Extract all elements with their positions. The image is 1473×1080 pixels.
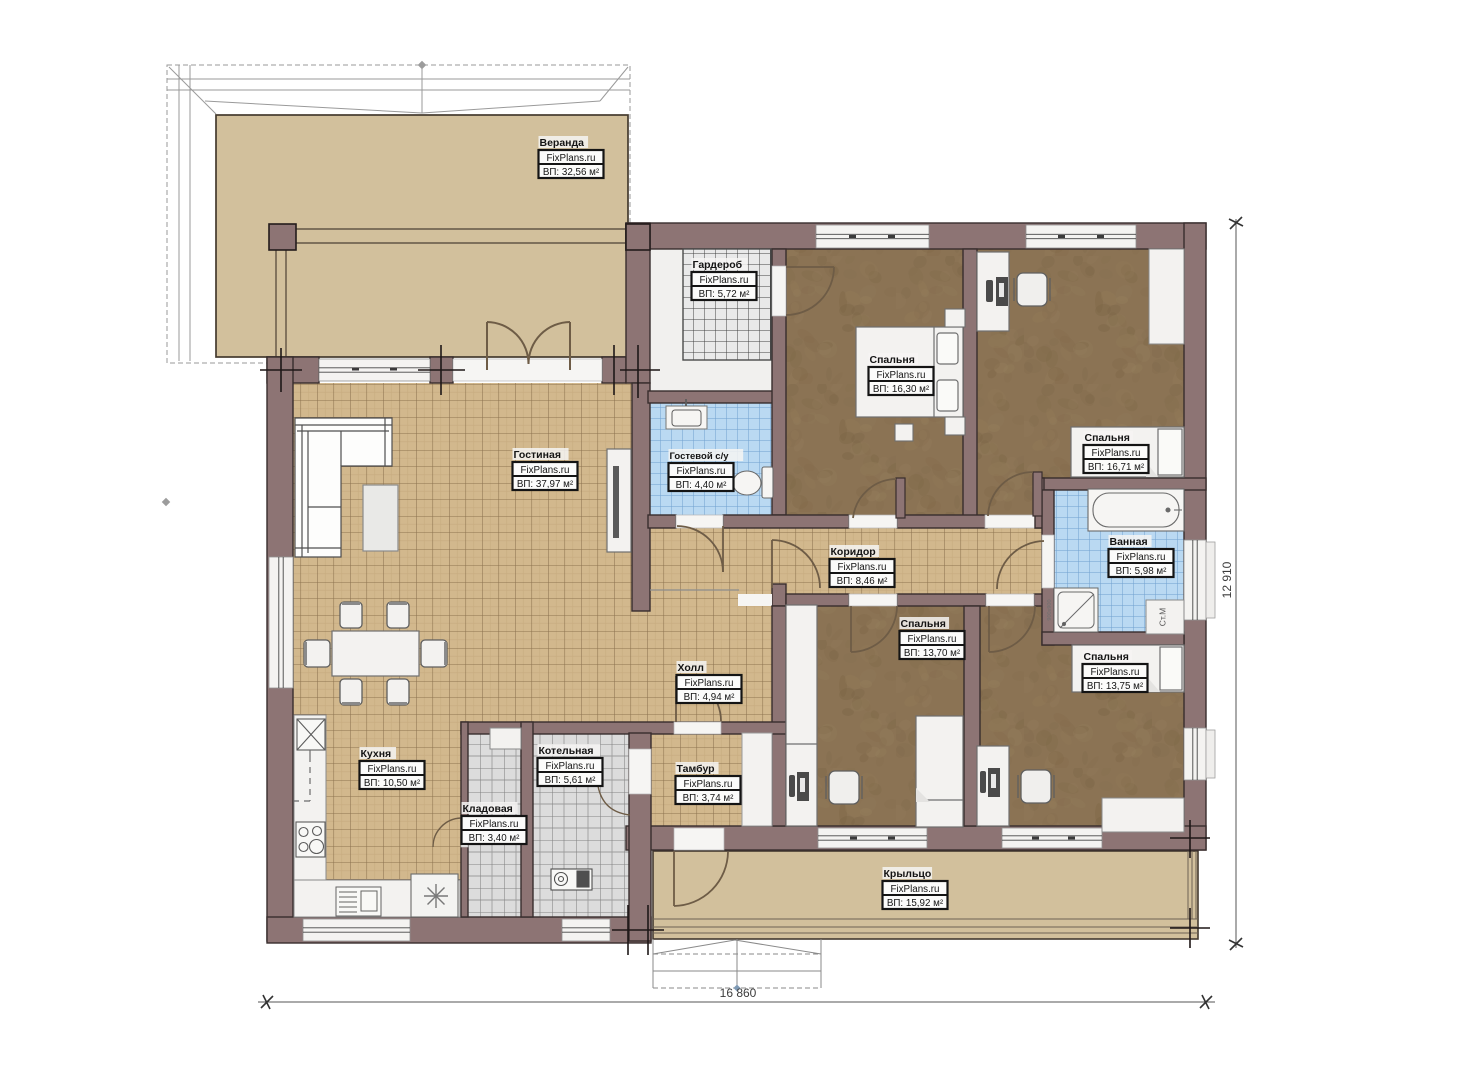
svg-text:Котельная: Котельная	[539, 745, 594, 757]
svg-text:FixPlans.ru: FixPlans.ru	[891, 884, 940, 895]
svg-text:FixPlans.ru: FixPlans.ru	[677, 466, 726, 477]
svg-text:Гостевой с/у: Гостевой с/у	[670, 451, 730, 462]
svg-text:Спальня: Спальня	[901, 618, 946, 630]
svg-text:FixPlans.ru: FixPlans.ru	[1092, 448, 1141, 459]
svg-text:ВП: 15,92 м²: ВП: 15,92 м²	[887, 898, 944, 909]
svg-text:ВП: 4,94 м²: ВП: 4,94 м²	[684, 692, 736, 703]
svg-text:FixPlans.ru: FixPlans.ru	[1117, 552, 1166, 563]
svg-text:ВП: 37,97 м²: ВП: 37,97 м²	[517, 479, 574, 490]
svg-text:FixPlans.ru: FixPlans.ru	[1091, 667, 1140, 678]
svg-text:FixPlans.ru: FixPlans.ru	[684, 779, 733, 790]
svg-text:ВП: 5,61 м²: ВП: 5,61 м²	[545, 775, 597, 786]
svg-text:Гостиная: Гостиная	[514, 449, 561, 461]
svg-text:ВП: 5,72 м²: ВП: 5,72 м²	[699, 289, 751, 300]
svg-text:Ванная: Ванная	[1110, 536, 1148, 548]
svg-text:12 910: 12 910	[1220, 561, 1234, 598]
svg-text:ВП: 13,75 м²: ВП: 13,75 м²	[1087, 681, 1144, 692]
svg-text:FixPlans.ru: FixPlans.ru	[685, 678, 734, 689]
svg-text:FixPlans.ru: FixPlans.ru	[700, 275, 749, 286]
svg-text:Спальня: Спальня	[1084, 651, 1129, 663]
svg-text:Спальня: Спальня	[870, 354, 915, 366]
svg-text:FixPlans.ru: FixPlans.ru	[877, 370, 926, 381]
svg-text:ВП: 8,46 м²: ВП: 8,46 м²	[837, 576, 889, 587]
svg-text:Ст.М: Ст.М	[1157, 608, 1167, 627]
svg-text:ВП: 10,50 м²: ВП: 10,50 м²	[364, 778, 421, 789]
svg-text:900х900: 900х900	[1047, 599, 1053, 620]
svg-text:ВП: 3,40 м²: ВП: 3,40 м²	[469, 833, 521, 844]
svg-text:FixPlans.ru: FixPlans.ru	[908, 634, 957, 645]
svg-text:Гардероб: Гардероб	[693, 259, 743, 271]
svg-text:ВП: 5,98 м²: ВП: 5,98 м²	[1116, 566, 1168, 577]
svg-text:Кладовая: Кладовая	[463, 803, 513, 815]
svg-text:ВП: 3,74 м²: ВП: 3,74 м²	[683, 793, 735, 804]
svg-text:Холл: Холл	[678, 662, 704, 674]
svg-text:Коридор: Коридор	[831, 546, 876, 558]
svg-text:FixPlans.ru: FixPlans.ru	[368, 764, 417, 775]
svg-text:Крыльцо: Крыльцо	[884, 868, 932, 880]
svg-text:ВП: 16,30 м²: ВП: 16,30 м²	[873, 384, 930, 395]
svg-text:FixPlans.ru: FixPlans.ru	[838, 562, 887, 573]
svg-text:Тамбур: Тамбур	[677, 763, 715, 775]
svg-text:ВП: 4,40 м²: ВП: 4,40 м²	[676, 480, 728, 491]
svg-text:ВП: 16,71 м²: ВП: 16,71 м²	[1088, 462, 1145, 473]
svg-text:ВП: 13,70 м²: ВП: 13,70 м²	[904, 648, 961, 659]
svg-text:Спальня: Спальня	[1085, 432, 1130, 444]
svg-text:FixPlans.ru: FixPlans.ru	[546, 761, 595, 772]
svg-text:FixPlans.ru: FixPlans.ru	[470, 819, 519, 830]
svg-text:ВП: 32,56 м²: ВП: 32,56 м²	[543, 167, 600, 178]
svg-text:FixPlans.ru: FixPlans.ru	[547, 153, 596, 164]
svg-text:Веранда: Веранда	[540, 137, 585, 149]
svg-text:16 860: 16 860	[720, 986, 757, 1000]
svg-text:Кухня: Кухня	[361, 748, 392, 760]
svg-text:FixPlans.ru: FixPlans.ru	[521, 465, 570, 476]
